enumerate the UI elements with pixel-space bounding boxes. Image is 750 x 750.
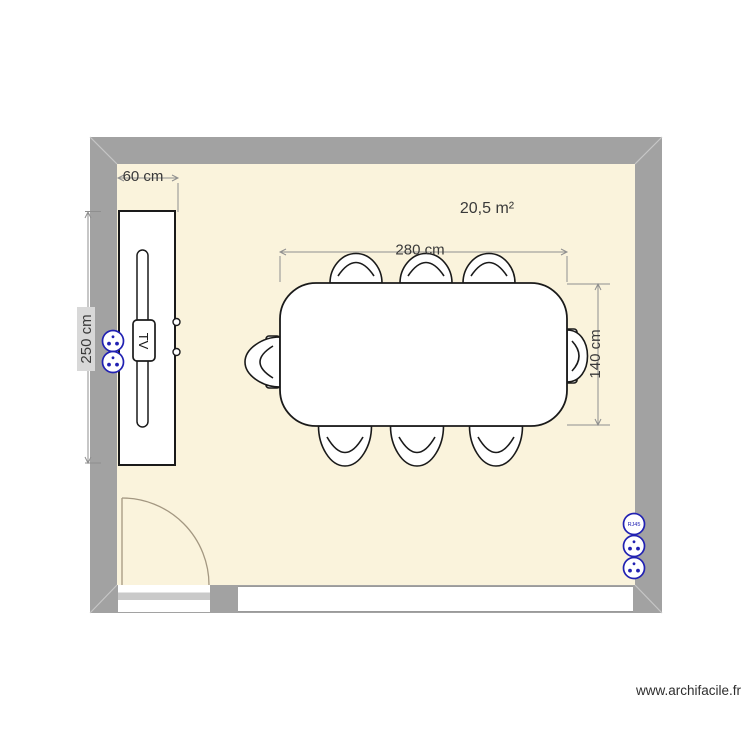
power-outlet[interactable] — [624, 536, 645, 557]
bay-opening[interactable] — [238, 587, 633, 612]
floor-plan-canvas: TV — [0, 0, 750, 750]
power-outlet[interactable] — [624, 558, 645, 579]
floor-plan-svg: TV — [0, 0, 750, 750]
rj45-label: RJ45 — [628, 522, 641, 528]
door-threshold — [118, 593, 210, 601]
power-outlet[interactable] — [103, 352, 124, 373]
outlets-right-wall: RJ45 — [624, 514, 645, 579]
door-opening[interactable] — [118, 585, 210, 612]
room-area-label: 20,5 m² — [460, 200, 515, 217]
dining-table[interactable] — [280, 283, 567, 426]
power-outlet[interactable] — [103, 331, 124, 352]
bay-opening-gap — [238, 587, 633, 612]
watermark: www.archifacile.fr — [635, 683, 742, 698]
tv-label: TV — [136, 333, 151, 350]
rj45-outlet[interactable]: RJ45 — [624, 514, 645, 535]
dim-label-table-width: 140 cm — [587, 329, 604, 378]
dim-label-cabinet-width: 60 cm — [123, 168, 164, 185]
tv-cabinet[interactable]: TV — [119, 211, 180, 465]
dim-label-cabinet-length: 250 cm — [78, 314, 95, 363]
dim-label-table-length: 280 cm — [395, 242, 444, 259]
